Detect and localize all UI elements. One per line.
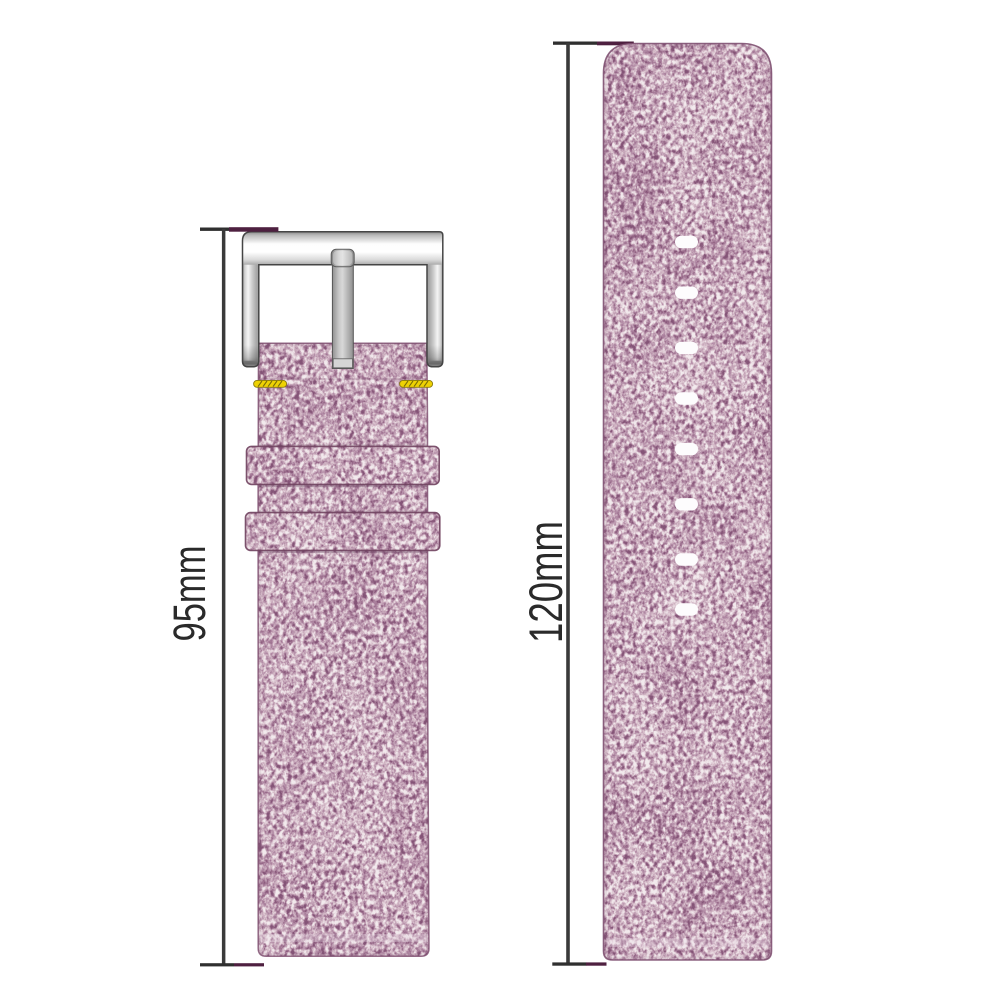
svg-text:120mm: 120mm [519,521,572,643]
svg-text:95mm: 95mm [164,546,215,642]
